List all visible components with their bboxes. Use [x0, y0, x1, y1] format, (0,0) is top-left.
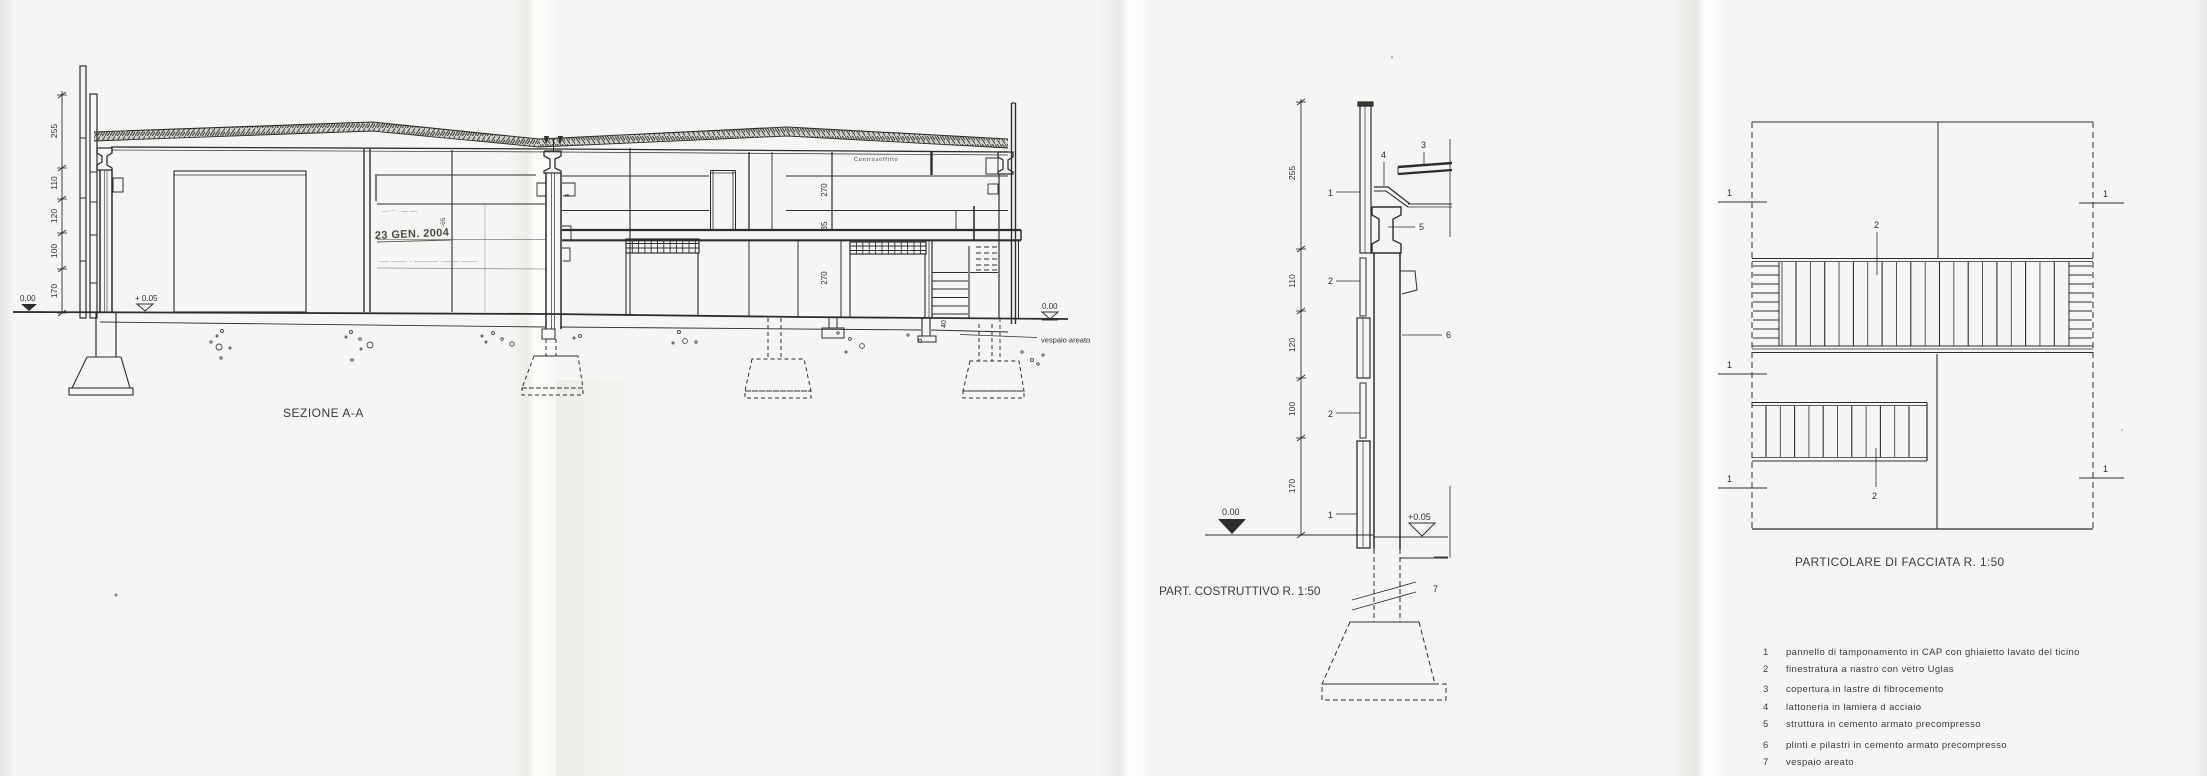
svg-text:110: 110 [49, 176, 59, 190]
svg-text:255: 255 [1287, 166, 1297, 180]
svg-text:copertura in lastre di fibroc: copertura in lastre di fibrocemento [1786, 684, 1944, 695]
svg-text:2: 2 [1328, 409, 1333, 419]
svg-text:+0.05: +0.05 [1408, 512, 1431, 522]
svg-text:finestratura a nastro con vetr: finestratura a nastro con vetro Uglas [1786, 664, 1954, 675]
svg-text:Controsoffitto: Controsoffitto [854, 157, 899, 163]
svg-text:plinti e pilastri in cemento a: plinti e pilastri in cemento armato prec… [1786, 740, 2007, 751]
svg-text:vespaio areato: vespaio areato [1041, 336, 1090, 345]
svg-text:110: 110 [1287, 274, 1297, 288]
svg-text:270: 270 [820, 271, 829, 285]
svg-text:270: 270 [820, 183, 829, 197]
svg-text:1: 1 [1727, 360, 1732, 370]
svg-text:170: 170 [1287, 479, 1297, 493]
svg-text:100: 100 [1287, 402, 1297, 416]
svg-text:+ 0.05: + 0.05 [135, 294, 158, 303]
svg-text:40: 40 [941, 320, 948, 328]
svg-text:0.00: 0.00 [1222, 507, 1240, 517]
svg-text:lattoneria in lamiera d accia: lattoneria in lamiera d acciaio [1786, 702, 1921, 713]
svg-text:7: 7 [1763, 757, 1768, 768]
svg-text:255: 255 [49, 124, 59, 138]
svg-text:-65: -65 [440, 217, 447, 227]
svg-text:1: 1 [2103, 189, 2108, 199]
svg-text:0.00: 0.00 [1042, 302, 1058, 311]
svg-text:2: 2 [1763, 664, 1768, 675]
svg-text:2: 2 [1874, 220, 1879, 230]
svg-text:7: 7 [1433, 584, 1438, 594]
svg-text:120: 120 [1287, 338, 1297, 352]
svg-text:1: 1 [1328, 510, 1333, 520]
svg-text:·— —— · ——— ·—— ——: ·— —— · ——— ·—— —— [378, 257, 477, 266]
svg-text:1: 1 [1727, 188, 1732, 198]
svg-text:1: 1 [1763, 647, 1768, 658]
svg-text:— ~ · — —: — ~ · — — [382, 208, 417, 215]
svg-text:5: 5 [1763, 719, 1768, 730]
svg-text:170: 170 [49, 284, 59, 298]
svg-text:3: 3 [1421, 140, 1426, 150]
svg-text:6: 6 [1446, 330, 1451, 340]
svg-text:struttura in cemento armato pr: struttura in cemento armato precompresso [1786, 719, 1981, 730]
svg-text:4: 4 [1763, 702, 1768, 713]
svg-text:3: 3 [1763, 684, 1768, 695]
svg-text:1: 1 [2103, 464, 2108, 474]
svg-text:PART. COSTRUTTIVO R. 1:50: PART. COSTRUTTIVO R. 1:50 [1159, 584, 1321, 598]
svg-text:1: 1 [1727, 474, 1732, 484]
svg-text:pannello di tamponamento in CA: pannello di tamponamento in CAP con ghia… [1786, 647, 2080, 658]
svg-text:6: 6 [1763, 740, 1768, 751]
svg-text:2: 2 [1872, 491, 1877, 501]
svg-text:PARTICOLARE DI FACCIATA R.: PARTICOLARE DI FACCIATA R. 1:50 [1795, 555, 2005, 569]
svg-text:4: 4 [1381, 150, 1386, 160]
svg-text:35: 35 [820, 221, 829, 230]
svg-text:vespaio areato: vespaio areato [1786, 757, 1854, 768]
svg-text:120: 120 [49, 209, 59, 223]
svg-text:5: 5 [1419, 222, 1424, 232]
svg-text:1: 1 [1328, 188, 1333, 198]
svg-text:100: 100 [49, 244, 59, 258]
svg-text:0.00: 0.00 [20, 294, 36, 303]
svg-text:SEZIONE A-A: SEZIONE A-A [283, 406, 364, 420]
svg-text:2: 2 [1328, 276, 1333, 286]
